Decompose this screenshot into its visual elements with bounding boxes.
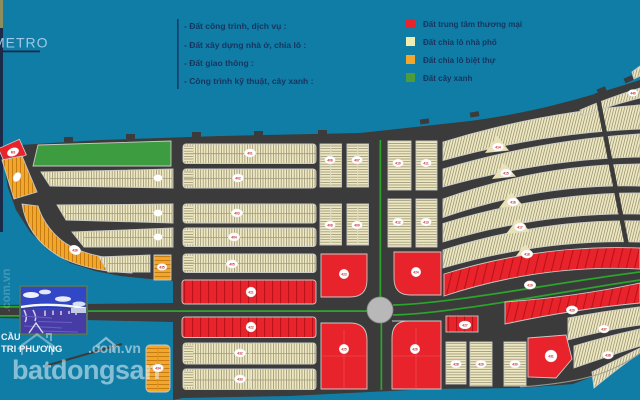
svg-text:418: 418 [524,253,530,257]
svg-text:422: 422 [248,326,254,330]
svg-text:414: 414 [495,146,501,150]
svg-text:407: 407 [354,159,360,163]
svg-text:423: 423 [341,273,347,277]
svg-text:432: 432 [237,352,243,356]
svg-text:.com.vn: .com.vn [88,340,141,356]
svg-text:424: 424 [413,271,419,275]
svg-text:427: 427 [462,324,468,328]
svg-text:417: 417 [517,226,523,230]
svg-text:438: 438 [605,354,611,358]
svg-text:420: 420 [569,309,575,313]
svg-text:434: 434 [155,367,161,371]
svg-text:412: 412 [395,221,401,225]
svg-text:426: 426 [412,348,418,352]
svg-text:batdongsan: batdongsan [12,355,160,385]
svg-text:.com.vn: .com.vn [1,269,13,312]
svg-text:405: 405 [229,263,235,267]
svg-text:- Công trình kỹ thuật, cây xan: - Công trình kỹ thuật, cây xanh : [184,76,314,86]
svg-text:421: 421 [248,291,254,295]
svg-text:M3: M3 [11,151,16,155]
svg-text:410: 410 [395,162,401,166]
svg-text:413: 413 [423,221,429,225]
svg-text:409: 409 [354,224,360,228]
svg-text:435: 435 [159,266,165,270]
svg-text:Đất chia lô nhà phố: Đất chia lô nhà phố [423,38,497,47]
svg-text:433: 433 [237,378,243,382]
svg-text:415: 415 [503,172,509,176]
svg-text:Đất chia lô biệt thự: Đất chia lô biệt thự [423,56,496,65]
svg-text:408: 408 [327,224,333,228]
svg-text:402: 402 [235,177,241,181]
svg-text:403: 403 [234,212,240,216]
svg-text:431: 431 [548,355,554,359]
svg-text:430: 430 [512,363,518,367]
svg-text:- Đất xây dựng nhà ở, chia lô: - Đất xây dựng nhà ở, chia lô : [184,40,306,50]
svg-text:- Đất công trình, dịch vụ :: - Đất công trình, dịch vụ : [184,21,287,31]
svg-text:411: 411 [423,162,428,166]
svg-text:437: 437 [601,328,607,332]
svg-text:- Đất giao thông :: - Đất giao thông : [184,58,254,68]
svg-text:Đất trung tâm thương mại: Đất trung tâm thương mại [423,20,522,29]
svg-text:428: 428 [453,363,459,367]
svg-text:440: 440 [630,92,636,96]
svg-text:416: 416 [510,201,516,205]
svg-text:406: 406 [327,159,333,163]
svg-text:METRO: METRO [0,35,49,51]
svg-text:436: 436 [72,249,78,253]
svg-text:419: 419 [527,284,533,288]
svg-text:429: 429 [478,363,484,367]
svg-text:404: 404 [231,236,237,240]
svg-text:425: 425 [341,348,347,352]
svg-text:401: 401 [247,152,253,156]
svg-text:Đất cây xanh: Đất cây xanh [423,74,472,83]
svg-text:CẦU: CẦU [1,332,21,342]
